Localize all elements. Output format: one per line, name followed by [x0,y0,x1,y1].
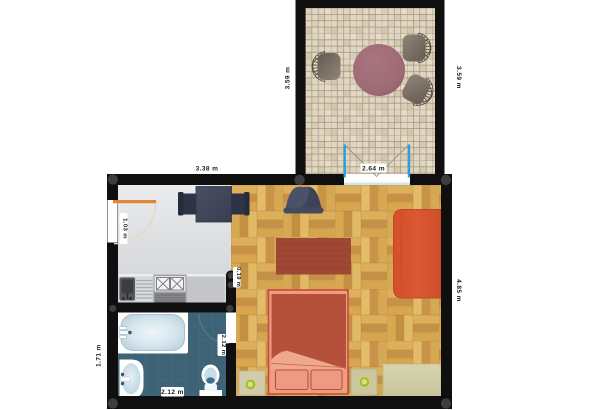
svg-text:2.12 m: 2.12 m [220,335,226,356]
svg-text:1.71 m: 1.71 m [96,344,103,367]
svg-text:2.12 m: 2.12 m [161,389,184,396]
svg-text:3.59 m: 3.59 m [285,67,292,90]
svg-text:3.38 m: 3.38 m [196,166,219,173]
svg-text:0.19 m: 0.19 m [235,267,241,287]
svg-text:3.59 m: 3.59 m [455,66,462,89]
svg-text:4.85 m: 4.85 m [455,279,462,302]
svg-text:2.64 m: 2.64 m [362,165,385,172]
svg-text:1.03 m: 1.03 m [122,218,128,239]
